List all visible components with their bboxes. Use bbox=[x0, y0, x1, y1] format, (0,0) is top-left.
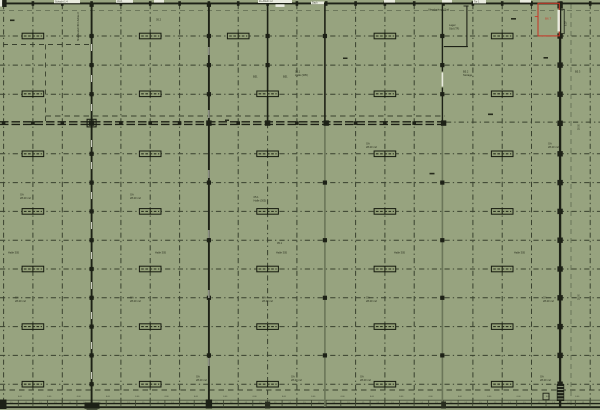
svg-text:28.20 m2: 28.20 m2 bbox=[196, 378, 207, 382]
svg-text:28.20 m2: 28.20 m2 bbox=[548, 145, 559, 149]
svg-text:Süd (TF): Süd (TF) bbox=[449, 26, 459, 30]
svg-text:B5.2: B5.2 bbox=[463, 70, 469, 74]
svg-text:Dach: Dach bbox=[312, 1, 318, 4]
svg-text:1.5: 1.5 bbox=[333, 402, 336, 404]
svg-text:1.5: 1.5 bbox=[39, 402, 42, 404]
svg-text:1.5: 1.5 bbox=[362, 402, 365, 404]
svg-text:Halle (305): Halle (305) bbox=[295, 73, 308, 77]
svg-text:Zu-Abluft 1.2: Zu-Abluft 1.2 bbox=[259, 0, 273, 3]
svg-text:1.5: 1.5 bbox=[347, 402, 350, 404]
svg-text:Halle 305: Halle 305 bbox=[394, 250, 406, 254]
svg-text:GA: GA bbox=[20, 193, 24, 197]
svg-text:GA: GA bbox=[366, 142, 370, 146]
svg-text:GA: GA bbox=[366, 296, 370, 300]
svg-text:28.20 m2: 28.20 m2 bbox=[543, 299, 554, 303]
svg-text:GA: GA bbox=[130, 193, 134, 197]
svg-text:1.5: 1.5 bbox=[274, 402, 277, 404]
svg-text:Halle (305): Halle (305) bbox=[254, 198, 267, 202]
svg-text:Halle 305: Halle 305 bbox=[276, 250, 288, 254]
svg-text:1.5: 1.5 bbox=[303, 402, 306, 404]
svg-text:B51: B51 bbox=[253, 75, 258, 79]
svg-text:1.5: 1.5 bbox=[450, 402, 453, 404]
svg-text:28.00: 28.00 bbox=[579, 294, 581, 300]
svg-text:05.1: 05.1 bbox=[277, 241, 283, 245]
svg-text:Uberdachung Sud: Uberdachung Sud bbox=[428, 8, 449, 12]
svg-text:GA: GA bbox=[130, 296, 134, 300]
svg-text:Lager: Lager bbox=[449, 23, 456, 27]
svg-text:1.5: 1.5 bbox=[10, 402, 13, 404]
svg-text:1.5: 1.5 bbox=[494, 402, 497, 404]
svg-text:05.2: 05.2 bbox=[156, 18, 162, 22]
svg-text:Halle 305: Halle 305 bbox=[514, 250, 526, 254]
svg-text:1.5: 1.5 bbox=[157, 402, 160, 404]
svg-text:1.5: 1.5 bbox=[552, 402, 555, 404]
svg-text:1.5: 1.5 bbox=[289, 402, 292, 404]
svg-text:1.5: 1.5 bbox=[259, 402, 262, 404]
svg-text:GA: GA bbox=[15, 296, 19, 300]
svg-text:1.5: 1.5 bbox=[127, 402, 130, 404]
svg-text:28.20 m2: 28.20 m2 bbox=[366, 299, 377, 303]
svg-text:1.5: 1.5 bbox=[567, 402, 570, 404]
svg-text:28.20 m2: 28.20 m2 bbox=[20, 196, 31, 200]
svg-text:28.00: 28.00 bbox=[579, 124, 581, 130]
svg-text:6.07: 6.07 bbox=[565, 21, 568, 26]
svg-text:1.5: 1.5 bbox=[201, 402, 204, 404]
svg-text:GA: GA bbox=[262, 296, 266, 300]
svg-text:1.5: 1.5 bbox=[435, 402, 438, 404]
svg-text:B6.7: B6.7 bbox=[545, 16, 552, 20]
svg-text:Vord.: Vord. bbox=[117, 0, 123, 3]
svg-text:1.5: 1.5 bbox=[113, 402, 116, 404]
svg-text:28.20 m2: 28.20 m2 bbox=[366, 145, 377, 149]
svg-text:1.5: 1.5 bbox=[98, 402, 101, 404]
svg-text:28.20 m2: 28.20 m2 bbox=[15, 299, 26, 303]
svg-text:1.5: 1.5 bbox=[54, 402, 57, 404]
svg-text:Brandwand F90 / Achse 3: Brandwand F90 / Achse 3 bbox=[77, 12, 80, 41]
svg-text:Halle 305: Halle 305 bbox=[8, 250, 20, 254]
svg-text:1.5: 1.5 bbox=[25, 402, 28, 404]
svg-text:1.5: 1.5 bbox=[523, 402, 526, 404]
svg-text:1.5: 1.5 bbox=[582, 402, 585, 404]
svg-text:1.5: 1.5 bbox=[421, 402, 424, 404]
svg-text:1.5: 1.5 bbox=[465, 402, 468, 404]
svg-text:28.20 m2: 28.20 m2 bbox=[291, 378, 302, 382]
svg-text:1.5: 1.5 bbox=[69, 402, 72, 404]
svg-text:1.5: 1.5 bbox=[406, 402, 409, 404]
svg-text:28.20 m2: 28.20 m2 bbox=[360, 378, 371, 382]
svg-text:B5.3: B5.3 bbox=[575, 70, 581, 74]
svg-text:GA: GA bbox=[543, 296, 547, 300]
svg-text:1.5: 1.5 bbox=[245, 402, 248, 404]
svg-text:Tor 1: Tor 1 bbox=[474, 1, 480, 4]
svg-text:05.1: 05.1 bbox=[295, 70, 301, 74]
svg-text:1.5: 1.5 bbox=[318, 402, 321, 404]
svg-text:28.20 m2: 28.20 m2 bbox=[130, 299, 141, 303]
svg-text:1.5: 1.5 bbox=[230, 402, 233, 404]
svg-text:Storage: Storage bbox=[463, 73, 473, 77]
svg-text:1.5: 1.5 bbox=[171, 402, 174, 404]
svg-text:GA: GA bbox=[548, 142, 552, 146]
svg-text:28.20 m2: 28.20 m2 bbox=[540, 378, 551, 382]
svg-text:28.20 m2: 28.20 m2 bbox=[130, 196, 141, 200]
svg-text:1.5: 1.5 bbox=[538, 402, 541, 404]
svg-text:Halle 305: Halle 305 bbox=[155, 250, 167, 254]
svg-text:1.5: 1.5 bbox=[479, 402, 482, 404]
svg-text:B51: B51 bbox=[283, 75, 288, 79]
svg-text:1.5: 1.5 bbox=[377, 402, 380, 404]
svg-text:1.5: 1.5 bbox=[186, 402, 189, 404]
svg-text:1.5: 1.5 bbox=[508, 402, 511, 404]
svg-text:05.1: 05.1 bbox=[254, 195, 260, 199]
svg-text:1.5: 1.5 bbox=[142, 402, 145, 404]
svg-text:1.5: 1.5 bbox=[83, 402, 86, 404]
svg-text:1.5: 1.5 bbox=[215, 402, 218, 404]
svg-text:Schacht 1.4: Schacht 1.4 bbox=[55, 0, 68, 3]
svg-text:28.20 m2: 28.20 m2 bbox=[262, 299, 273, 303]
svg-text:1.5: 1.5 bbox=[391, 402, 394, 404]
